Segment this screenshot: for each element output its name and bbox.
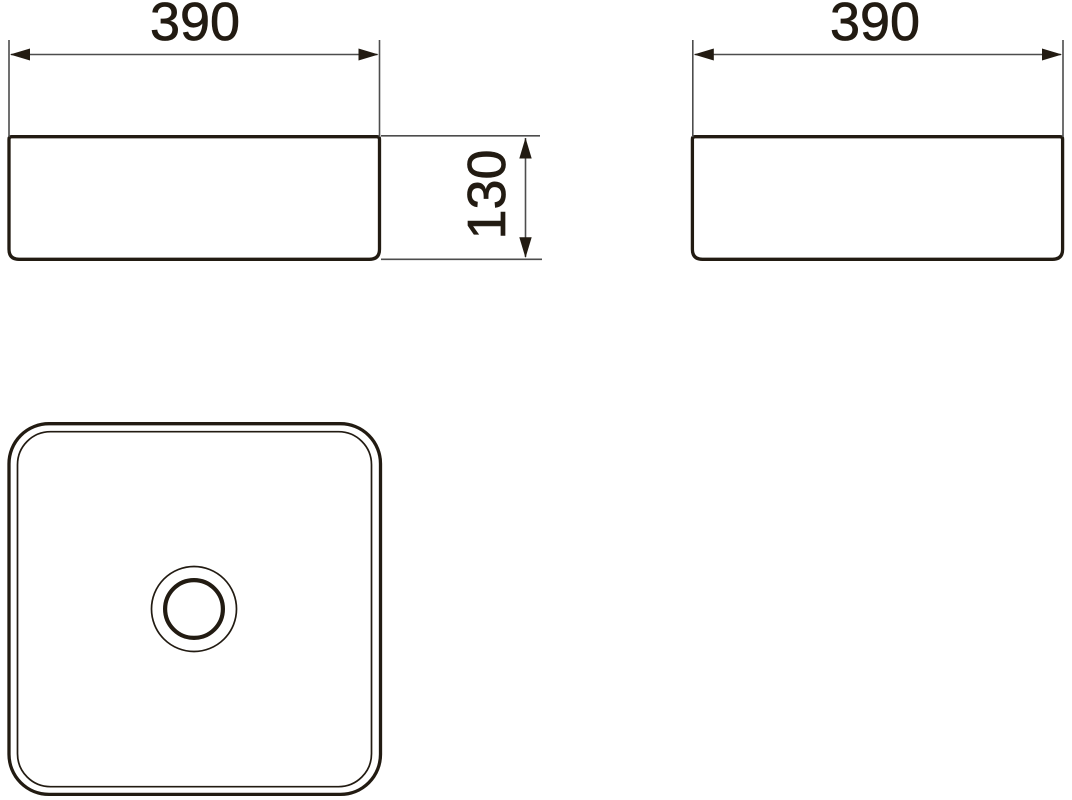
svg-text:390: 390 (830, 0, 920, 52)
svg-text:390: 390 (150, 0, 240, 52)
svg-text:130: 130 (457, 149, 517, 239)
